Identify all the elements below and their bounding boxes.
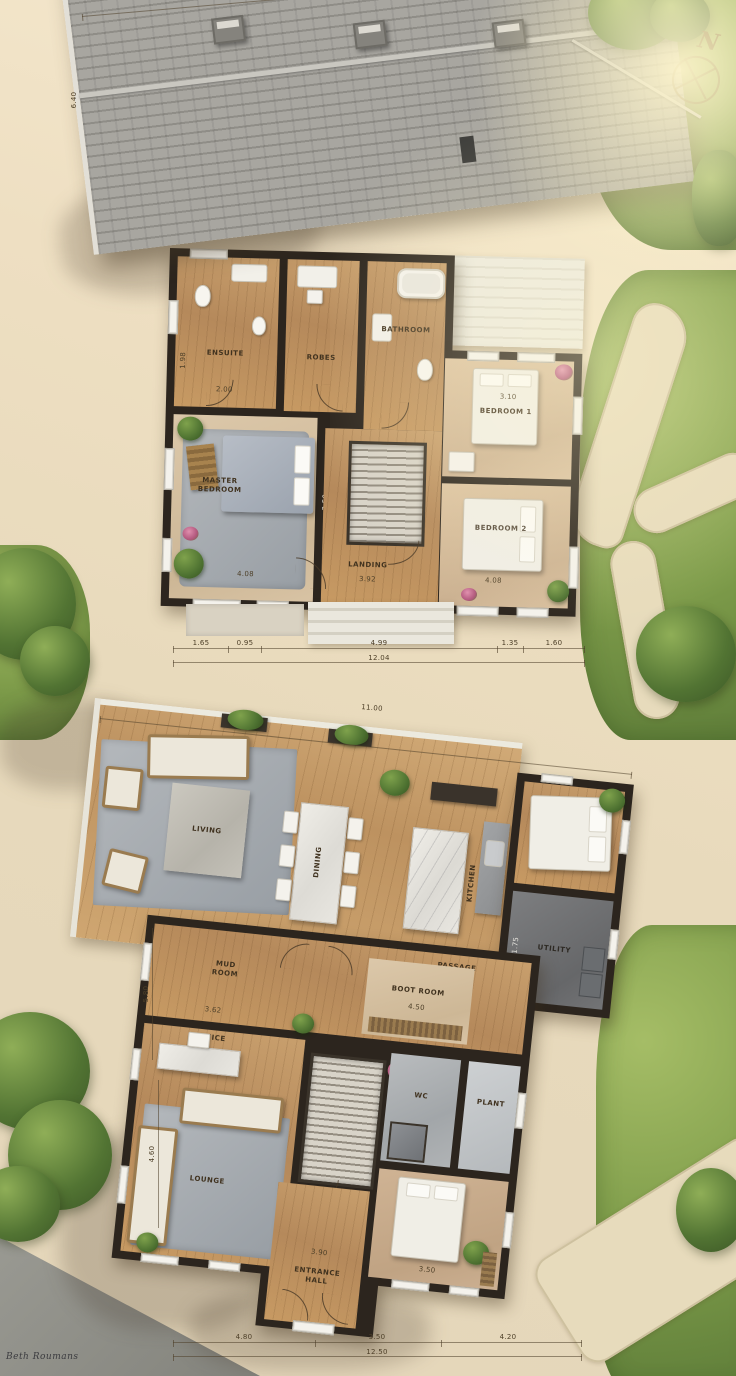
ground-floor-plan: LIVING DINING KITCHEN UTILITY 1.75 (31, 698, 637, 1364)
lower-dim-seg: 3.50 (369, 1333, 386, 1341)
window (467, 351, 499, 362)
lower-dim-line-left1 (152, 928, 153, 1060)
dining-chair (275, 878, 292, 901)
roof (58, 0, 694, 255)
window (516, 607, 548, 618)
ensuite-dim-h: 1.98 (179, 352, 187, 369)
landing-dim: 3.92 (359, 575, 376, 583)
dining-chair (343, 851, 360, 874)
lower-dim-top: 11.00 (361, 703, 383, 713)
dining-chair (347, 817, 364, 840)
upper-deck (450, 255, 585, 348)
kitchen-island (403, 827, 469, 934)
lower-dim-seg: 4.80 (236, 1333, 253, 1341)
kitchen-sink (484, 840, 506, 868)
lower-dim-total: 12.50 (366, 1348, 388, 1356)
bedroom2-label: BEDROOM 2 (475, 524, 527, 534)
chimney (353, 20, 388, 50)
master-bed (221, 435, 315, 513)
bootroom-dim: 4.50 (408, 1002, 426, 1012)
tree (636, 606, 736, 702)
lower-dim-line-left2 (158, 1080, 159, 1228)
upper-dim-left: 6.40 (70, 92, 78, 109)
bathtub (397, 268, 446, 299)
roof-vent (459, 136, 476, 164)
bedroom1-label: BEDROOM 1 (480, 407, 532, 417)
patio (186, 604, 304, 636)
window (517, 352, 555, 363)
chimney (492, 19, 527, 49)
washer (581, 946, 605, 972)
bed (390, 1176, 466, 1263)
bedroom2-dim: 4.08 (485, 576, 502, 584)
lower-dim-left: 4.60 (148, 1146, 156, 1163)
bedroom3-dim: 3.50 (418, 1265, 436, 1275)
porch-steps (308, 602, 454, 644)
entrance-dim: 3.90 (310, 1248, 328, 1258)
master-label: MASTER BEDROOM (198, 476, 242, 495)
watermark: Beth Roumans (6, 1352, 79, 1362)
stairs (346, 441, 427, 547)
window (572, 397, 583, 435)
toilet (417, 359, 434, 381)
window (164, 448, 175, 490)
bedroom1-dim: 3.10 (500, 393, 517, 401)
upper-dim-seg: 1.60 (546, 639, 563, 647)
dryer (578, 972, 602, 998)
tree (692, 150, 736, 246)
master-dim-w: 4.08 (237, 570, 254, 578)
window (568, 547, 579, 589)
upper-dim-seg: 0.95 (237, 639, 254, 647)
lower-dim-line-bottom (173, 1342, 582, 1343)
sofa (147, 734, 250, 780)
bidet (252, 316, 266, 335)
tree (20, 626, 90, 696)
dining-chair (340, 885, 357, 908)
upper-dim-seg: 1.35 (502, 639, 519, 647)
upper-dim-line-bottom (173, 648, 585, 649)
lower-dim-seg: 4.20 (500, 1333, 517, 1341)
mudroom-dim: 3.62 (204, 1005, 222, 1015)
bed (462, 498, 544, 572)
upper-dim-seg: 4.99 (371, 639, 388, 647)
mudroom-label: MUD ROOM (211, 959, 239, 979)
stairs (298, 1053, 387, 1190)
lower-dim-left: 5.80 (142, 986, 150, 1003)
lower-dim-line-total (173, 1356, 582, 1357)
window (456, 606, 498, 617)
upper-dim-total: 12.04 (368, 654, 390, 662)
window (190, 249, 228, 260)
dining-chair (278, 844, 295, 867)
first-floor-plan: ENSUITE 2.00 1.98 ROBES BATHROOM MASTER … (161, 248, 585, 617)
shower (386, 1121, 428, 1163)
window (162, 538, 173, 572)
toilet (194, 285, 211, 307)
desk-chair (187, 1032, 210, 1049)
tree (676, 1168, 736, 1252)
window (449, 1285, 480, 1297)
dressing-table (297, 265, 338, 288)
stool (307, 290, 323, 304)
vanity (231, 264, 267, 283)
dining-chair (282, 810, 299, 833)
bathroom-label: BATHROOM (381, 325, 430, 335)
upper-dim-line-total (173, 662, 585, 663)
landing-label: LANDING (348, 560, 387, 570)
armchair (102, 766, 144, 812)
armchair (448, 451, 475, 472)
upper-dim-seg: 1.65 (193, 639, 210, 647)
ensuite-label: ENSUITE (207, 349, 244, 359)
robes-label: ROBES (307, 353, 336, 363)
aerial-floor-plan-render: LIVING DINING KITCHEN UTILITY 1.75 (0, 0, 736, 1376)
window (168, 300, 179, 334)
wc-label: WC (414, 1091, 429, 1101)
window (208, 1260, 241, 1272)
window (608, 929, 620, 960)
chimney (211, 15, 246, 45)
